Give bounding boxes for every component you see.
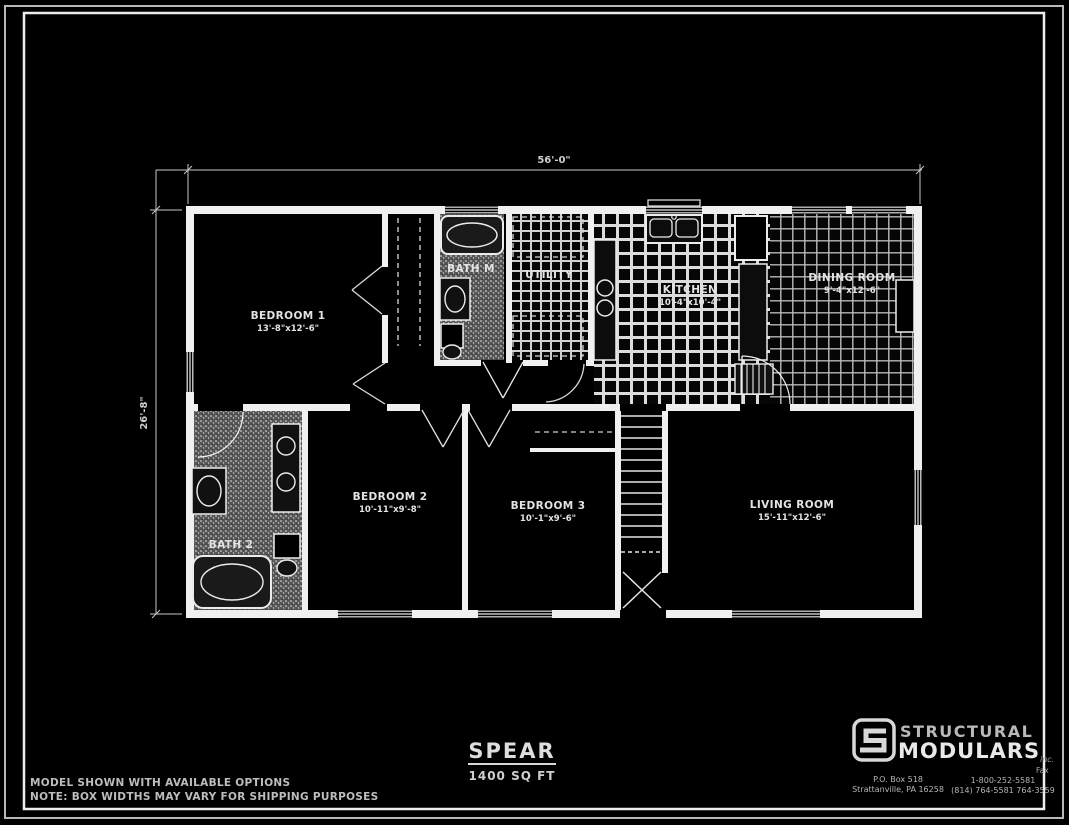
window-living [732, 610, 820, 618]
note-line-1: MODEL SHOWN WITH AVAILABLE OPTIONS [30, 777, 290, 789]
window-bath1 [445, 206, 498, 214]
note-line-2: NOTE: BOX WIDTHS MAY VARY FOR SHIPPING P… [30, 791, 379, 803]
title-block: SPEAR 1400 SQ FT [468, 739, 556, 783]
floorplan-sheet: 56'-0" 26'-8" BEDROOM 1 13'-8"x12'-6" BA… [0, 0, 1069, 825]
brand-suffix: inc. [1040, 755, 1054, 764]
brand-address-1: P.O. Box 518 [873, 775, 923, 784]
brand-phone-2: (814) 764-5581 764-3559 [951, 786, 1055, 795]
sheet-border [5, 6, 1063, 818]
structural-modulars-logo-icon [854, 720, 894, 760]
window-kitchen [646, 200, 702, 214]
kitchen-bench [735, 364, 773, 394]
brand-phone-1: 1-800-252-5581 [971, 776, 1036, 785]
room-label: UTILITY [525, 269, 573, 281]
room-label: KITCHEN [663, 284, 717, 296]
window-bedroom1-left [186, 352, 194, 392]
window-living-right [914, 470, 922, 525]
brand-fax-label: Fax [1036, 766, 1049, 775]
notes-block: MODEL SHOWN WITH AVAILABLE OPTIONS NOTE:… [30, 777, 379, 803]
room-label: BEDROOM 2 [353, 491, 428, 503]
room-label: DINING ROOM [808, 272, 895, 284]
branding-block: STRUCTURAL MODULARS inc. P.O. Box 518 St… [852, 720, 1055, 795]
room-bedroom2: BEDROOM 2 10'-11"x9'-8" [353, 491, 428, 515]
window-bedroom2 [338, 610, 412, 618]
brand-name-bottom: MODULARS [898, 739, 1040, 763]
room-dims: 9'-4"x12'-6" [824, 286, 880, 296]
window-bedroom3 [478, 610, 552, 618]
window-dining-1 [792, 206, 846, 214]
room-dims: 10'-4"x10'-4" [659, 298, 721, 308]
window-dining-2 [852, 206, 906, 214]
room-dims: 10'-11"x9'-8" [359, 505, 421, 515]
basement-door [623, 572, 661, 608]
stairs [620, 416, 666, 618]
model-name: SPEAR [468, 739, 555, 763]
room-label: BEDROOM 3 [511, 500, 586, 512]
room-dims: 13'-8"x12'-6" [257, 324, 319, 334]
brand-address-2: Strattanville, PA 16258 [852, 785, 944, 794]
room-bedroom3: BEDROOM 3 10'-1"x9'-6" [511, 500, 586, 524]
room-label: BEDROOM 1 [251, 310, 326, 322]
room-label: BATH M [447, 263, 495, 275]
room-bedroom1: BEDROOM 1 13'-8"x12'-6" [251, 310, 326, 334]
overall-width-dimension: 56'-0" [537, 155, 570, 166]
room-utility: UTILITY [525, 269, 573, 281]
room-label: BATH 2 [209, 539, 254, 551]
room-dims: 15'-11"x12'-6" [758, 513, 826, 523]
room-label: LIVING ROOM [750, 499, 834, 511]
floorplan-canvas: 56'-0" 26'-8" BEDROOM 1 13'-8"x12'-6" BA… [0, 0, 1069, 825]
room-living: LIVING ROOM 15'-11"x12'-6" [750, 499, 834, 523]
overall-depth-dimension: 26'-8" [139, 396, 150, 429]
model-area: 1400 SQ FT [469, 769, 556, 783]
room-dims: 10'-1"x9'-6" [520, 514, 576, 524]
room-bath1: BATH M [447, 263, 495, 275]
room-bath2: BATH 2 [209, 539, 254, 551]
